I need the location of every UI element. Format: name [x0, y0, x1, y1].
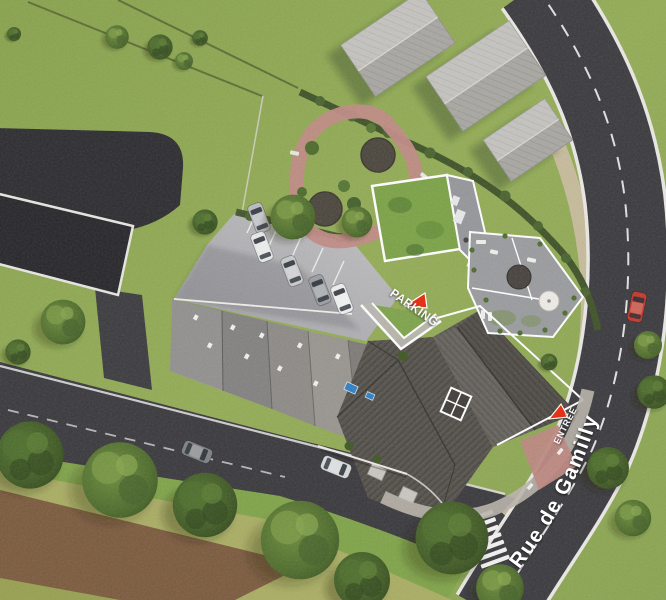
texture-overlay [0, 0, 666, 600]
site-plan-render: PARKING ENTRÉE Rue de Gamilly [0, 0, 666, 600]
site-plan-canvas: PARKING ENTRÉE Rue de Gamilly [0, 0, 666, 600]
